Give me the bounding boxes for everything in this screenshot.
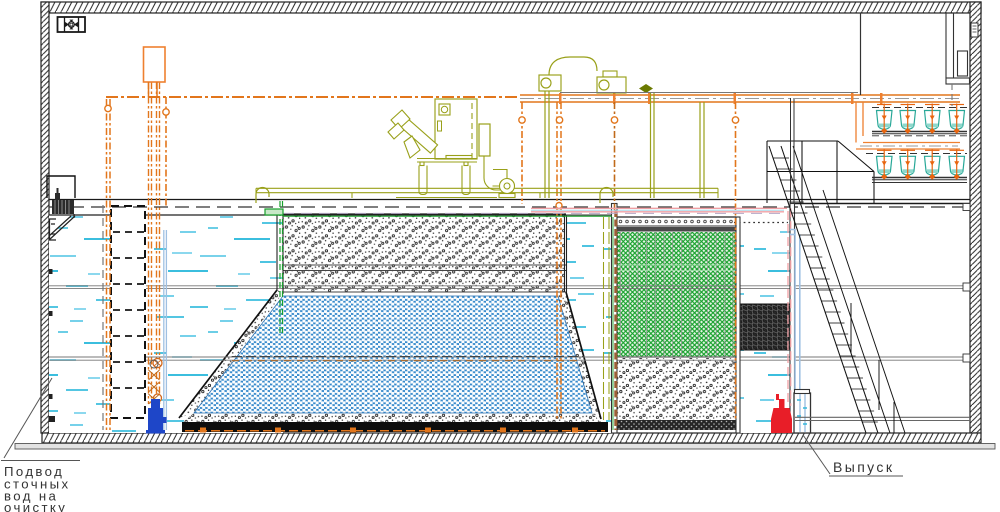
svg-text:очистку: очистку xyxy=(4,500,67,512)
svg-text:Выпуск: Выпуск xyxy=(833,459,894,475)
